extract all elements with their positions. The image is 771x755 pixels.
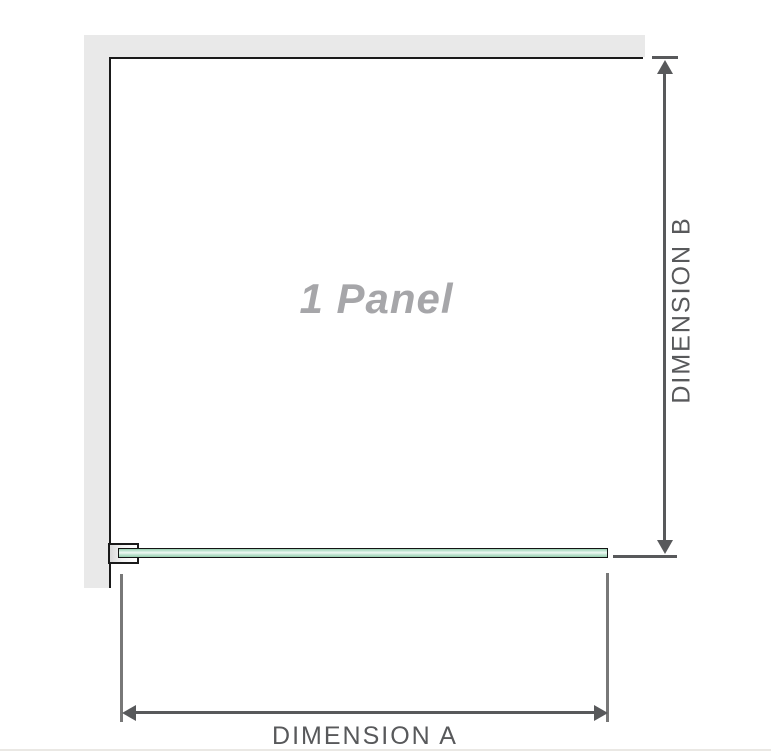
dimension-a-extension-left [120, 574, 123, 722]
panel-outline-top [110, 57, 643, 59]
arrow-right-icon [594, 705, 608, 721]
wall-top [84, 35, 645, 57]
dimension-a-extension-right [606, 573, 609, 722]
dimension-a-line [133, 711, 597, 714]
panel-label: 1 Panel [110, 275, 643, 323]
wall-left [84, 35, 109, 588]
arrow-up-icon [657, 60, 673, 74]
arrow-left-icon [122, 705, 136, 721]
arrow-down-icon [657, 540, 673, 554]
dimension-a-label: DIMENSION A [122, 722, 608, 751]
dimension-b-label: DIMENSION B [668, 216, 697, 403]
bottom-divider [0, 749, 771, 751]
dimension-b-tick-bottom [613, 555, 677, 558]
dimension-b-tick-top [652, 56, 678, 59]
shower-screen-diagram: 1 Panel DIMENSION B DIMENSION A [0, 0, 771, 755]
glass-panel [118, 548, 608, 558]
dimension-b-line [663, 70, 666, 542]
